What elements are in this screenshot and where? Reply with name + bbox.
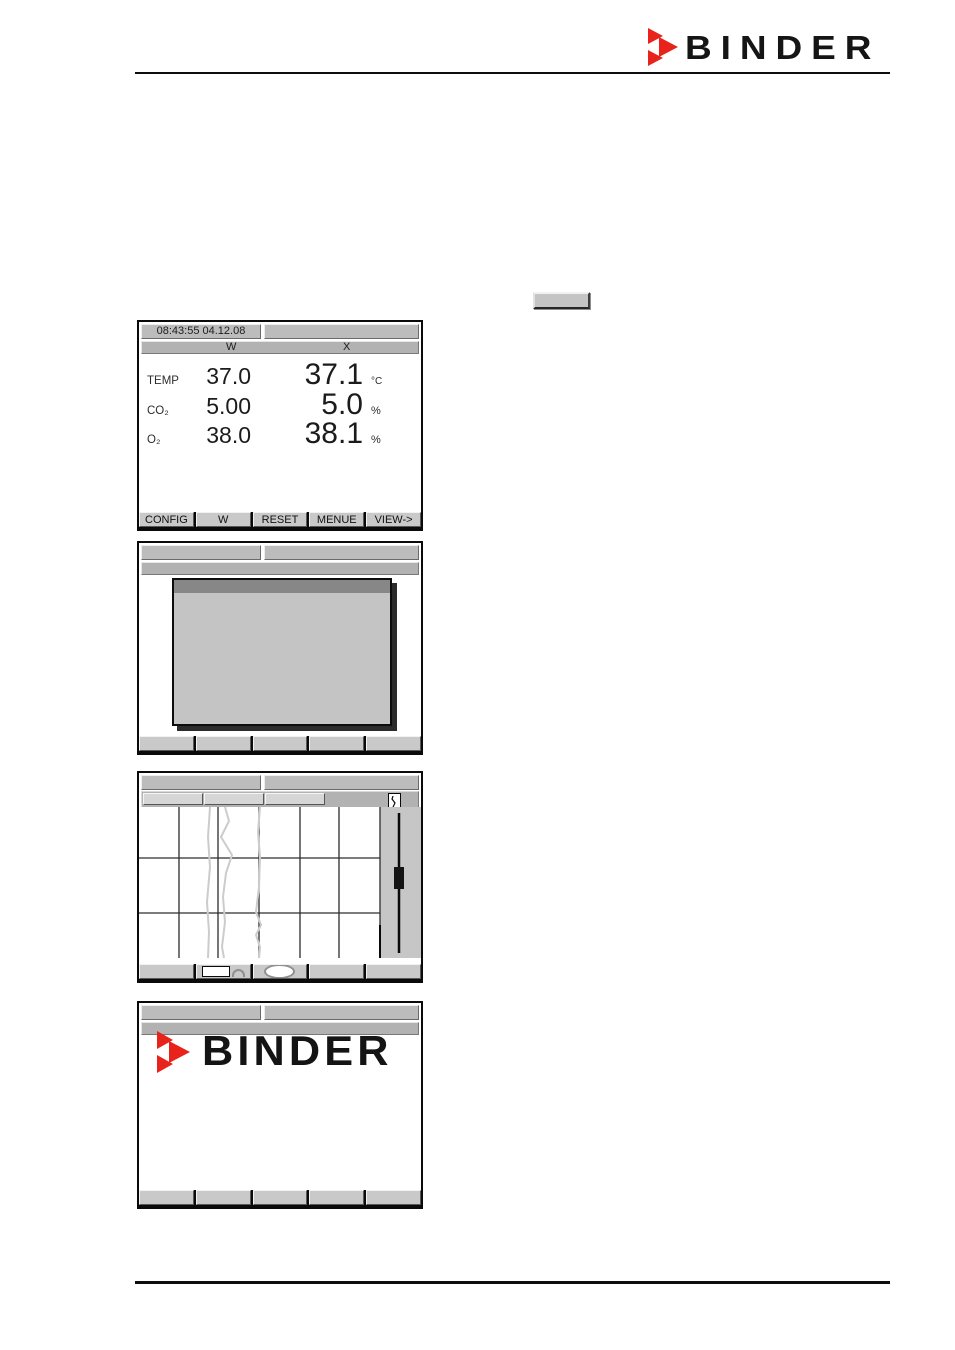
softkey-row xyxy=(139,736,421,753)
o2-label: O₂ xyxy=(147,434,201,446)
screen-normal-display: 08:43:55 04.12.08 W X TEMP 37.0 37.1 °C … xyxy=(137,320,423,531)
splash-binder-logo: BINDER xyxy=(157,1029,387,1073)
measurement-row-temp: TEMP 37.0 37.1 °C xyxy=(147,358,417,392)
softkey-5[interactable] xyxy=(366,1190,421,1205)
softkey-config[interactable]: CONFIG xyxy=(139,512,194,527)
temp-setpoint-value: 37.0 xyxy=(201,363,251,390)
zoom-rect-icon xyxy=(202,966,230,977)
pen-position-icon xyxy=(388,793,401,808)
time-date-box: 08:43:55 04.12.08 xyxy=(141,324,261,339)
softkey-w[interactable]: W xyxy=(196,512,251,527)
screen-splash: BINDER xyxy=(137,1001,423,1209)
softkey-3[interactable] xyxy=(253,1190,308,1205)
toolbar-button-2[interactable] xyxy=(204,793,264,805)
co2-label: CO₂ xyxy=(147,405,201,417)
trace-1 xyxy=(207,807,210,958)
softkey-4[interactable] xyxy=(309,736,364,751)
ellipse-icon xyxy=(264,964,295,979)
screen-trend-display xyxy=(137,771,423,983)
o2-unit: % xyxy=(363,434,405,446)
softkey-row xyxy=(139,1190,421,1207)
trend-chart-canvas xyxy=(139,807,421,958)
toolbar-button-1[interactable] xyxy=(143,793,203,805)
co2-setpoint-value: 5.00 xyxy=(201,393,251,420)
column-header-bar xyxy=(141,562,419,575)
column-x-label: X xyxy=(343,342,350,353)
softkey-reset[interactable]: RESET xyxy=(253,512,308,527)
screen-menu-dialog xyxy=(137,541,423,755)
column-header-bar: W X xyxy=(141,341,419,354)
temp-label: TEMP xyxy=(147,375,201,387)
status-box-empty xyxy=(264,775,419,790)
softkey-1[interactable] xyxy=(139,964,194,979)
status-box-empty xyxy=(264,545,419,560)
time-date-box xyxy=(141,545,261,560)
softkey-4[interactable] xyxy=(309,1190,364,1205)
softkey-4[interactable] xyxy=(309,964,364,979)
temp-unit: °C xyxy=(363,376,405,387)
red-triangle-icon xyxy=(648,50,663,66)
header-rule xyxy=(135,72,890,74)
softkey-row xyxy=(139,964,421,981)
softkey-ellipse[interactable] xyxy=(253,964,308,979)
softkey-2[interactable] xyxy=(196,736,251,751)
column-w-label: W xyxy=(226,342,236,353)
softkey-5[interactable] xyxy=(366,736,421,751)
status-box-empty xyxy=(264,324,419,339)
binder-logo-mark-icon xyxy=(157,1029,198,1073)
status-bar xyxy=(141,1005,419,1020)
softkey-row: CONFIG W RESET MENUE VIEW-> xyxy=(139,512,421,529)
measurement-row-o2: O₂ 38.0 38.1 % xyxy=(147,417,417,451)
trend-chart xyxy=(139,807,421,958)
dialog-title-bar xyxy=(174,580,390,593)
softkey-5[interactable] xyxy=(366,964,421,979)
o2-setpoint-value: 38.0 xyxy=(201,422,251,449)
binder-logo-mark-icon xyxy=(648,27,685,69)
status-bar: 08:43:55 04.12.08 xyxy=(141,324,419,339)
softkey-view[interactable]: VIEW-> xyxy=(366,512,421,527)
binder-logo: BINDER xyxy=(648,27,860,69)
footer-rule xyxy=(135,1281,890,1284)
softkey-3[interactable] xyxy=(253,736,308,751)
time-date-box xyxy=(141,1005,261,1020)
binder-logo-text: BINDER xyxy=(685,27,880,69)
status-box-empty xyxy=(264,1005,419,1020)
trend-traces xyxy=(207,807,261,958)
time-date-box xyxy=(141,775,261,790)
softkey-1[interactable] xyxy=(139,1190,194,1205)
pen-zigzag-icon xyxy=(389,796,398,807)
trace-2 xyxy=(221,807,232,958)
splash-binder-text: BINDER xyxy=(202,1029,393,1073)
scrollbar-handle[interactable] xyxy=(394,867,404,889)
status-bar xyxy=(141,545,419,560)
trend-toolbar xyxy=(141,791,419,808)
zoom-arc-icon xyxy=(232,969,245,977)
status-bar xyxy=(141,775,419,790)
toolbar-button-3[interactable] xyxy=(265,793,325,805)
dialog-window xyxy=(172,578,392,726)
softkey-zoom[interactable] xyxy=(196,964,251,979)
softkey-menue[interactable]: MENUE xyxy=(309,512,364,527)
inline-key-button[interactable] xyxy=(533,292,590,309)
o2-actual-value: 38.1 xyxy=(251,417,363,451)
softkey-1[interactable] xyxy=(139,736,194,751)
temp-actual-value: 37.1 xyxy=(251,358,363,392)
manual-page: BINDER 08:43:55 04.12.08 W X TEMP 37.0 3… xyxy=(0,0,955,1350)
co2-unit: % xyxy=(363,405,405,417)
red-triangle-icon xyxy=(157,1055,173,1073)
softkey-2[interactable] xyxy=(196,1190,251,1205)
